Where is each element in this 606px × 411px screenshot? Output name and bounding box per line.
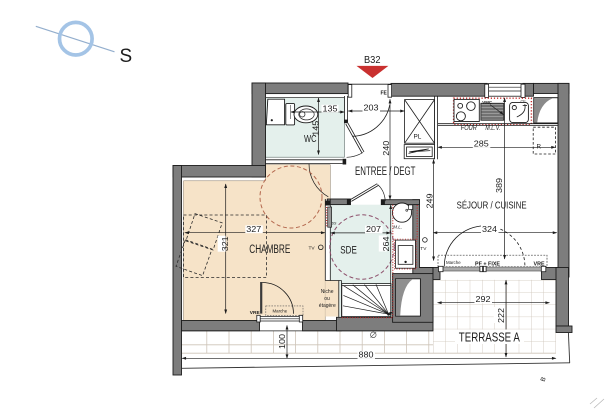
svg-text:249: 249 — [425, 193, 435, 208]
svg-text:VRE: VRE — [250, 310, 261, 316]
svg-text:ou: ou — [324, 296, 330, 302]
svg-text:PF + FIXE: PF + FIXE — [475, 262, 500, 268]
svg-text:CE: CE — [521, 100, 527, 104]
svg-text:S: S — [120, 46, 133, 67]
svg-text:880: 880 — [359, 350, 374, 360]
svg-text:étagère: étagère — [319, 303, 336, 309]
svg-text:VMC: VMC — [482, 100, 493, 105]
svg-text:FE: FE — [381, 91, 388, 97]
svg-text:VRE: VRE — [534, 262, 545, 268]
svg-text:SDE: SDE — [340, 245, 357, 257]
svg-text:324: 324 — [482, 224, 497, 234]
svg-text:203: 203 — [364, 102, 379, 112]
svg-text:FOUR: FOUR — [461, 123, 477, 132]
svg-text:WC: WC — [304, 134, 317, 145]
svg-text:TV: TV — [420, 246, 427, 252]
svg-text:ss: ss — [332, 221, 337, 226]
svg-text:389: 389 — [494, 178, 504, 193]
svg-text:285: 285 — [474, 139, 489, 149]
svg-text:292: 292 — [476, 294, 491, 304]
svg-text:135: 135 — [323, 103, 338, 113]
svg-text:TV: TV — [309, 245, 316, 251]
svg-text:264: 264 — [381, 236, 391, 251]
svg-text:TERRASSE A: TERRASSE A — [459, 331, 521, 345]
svg-text:CHAMBRE: CHAMBRE — [249, 244, 290, 256]
svg-text:M.L.V.: M.L.V. — [485, 123, 500, 132]
svg-text:240: 240 — [381, 140, 391, 155]
svg-text:PL: PL — [414, 134, 422, 141]
svg-text:Niche: Niche — [321, 289, 334, 295]
svg-text:222: 222 — [496, 308, 506, 323]
svg-text:Marche: Marche — [273, 308, 288, 313]
svg-text:Marche: Marche — [446, 260, 461, 265]
svg-text:321: 321 — [220, 236, 230, 251]
svg-text:ENTREE / DEGT: ENTREE / DEGT — [355, 166, 416, 178]
svg-text:327: 327 — [246, 224, 261, 234]
svg-text:SÉJOUR / CUISINE: SÉJOUR / CUISINE — [457, 198, 527, 211]
svg-text:100: 100 — [277, 334, 287, 349]
svg-text:207: 207 — [366, 224, 381, 234]
svg-text:B32: B32 — [364, 55, 381, 66]
svg-text:M.L.: M.L. — [393, 224, 402, 229]
